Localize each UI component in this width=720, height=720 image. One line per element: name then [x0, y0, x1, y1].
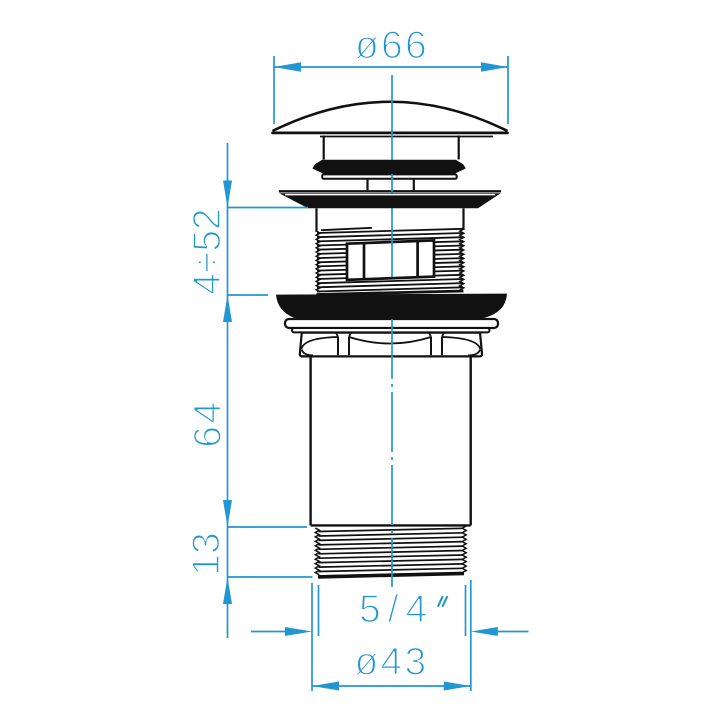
svg-text:ø66: ø66: [355, 24, 429, 67]
svg-text:5/4: 5/4: [359, 588, 434, 631]
svg-text:13: 13: [185, 532, 228, 575]
svg-text:4÷52: 4÷52: [186, 208, 229, 294]
svg-text:ø43: ø43: [354, 641, 428, 684]
svg-text:64: 64: [187, 399, 230, 447]
